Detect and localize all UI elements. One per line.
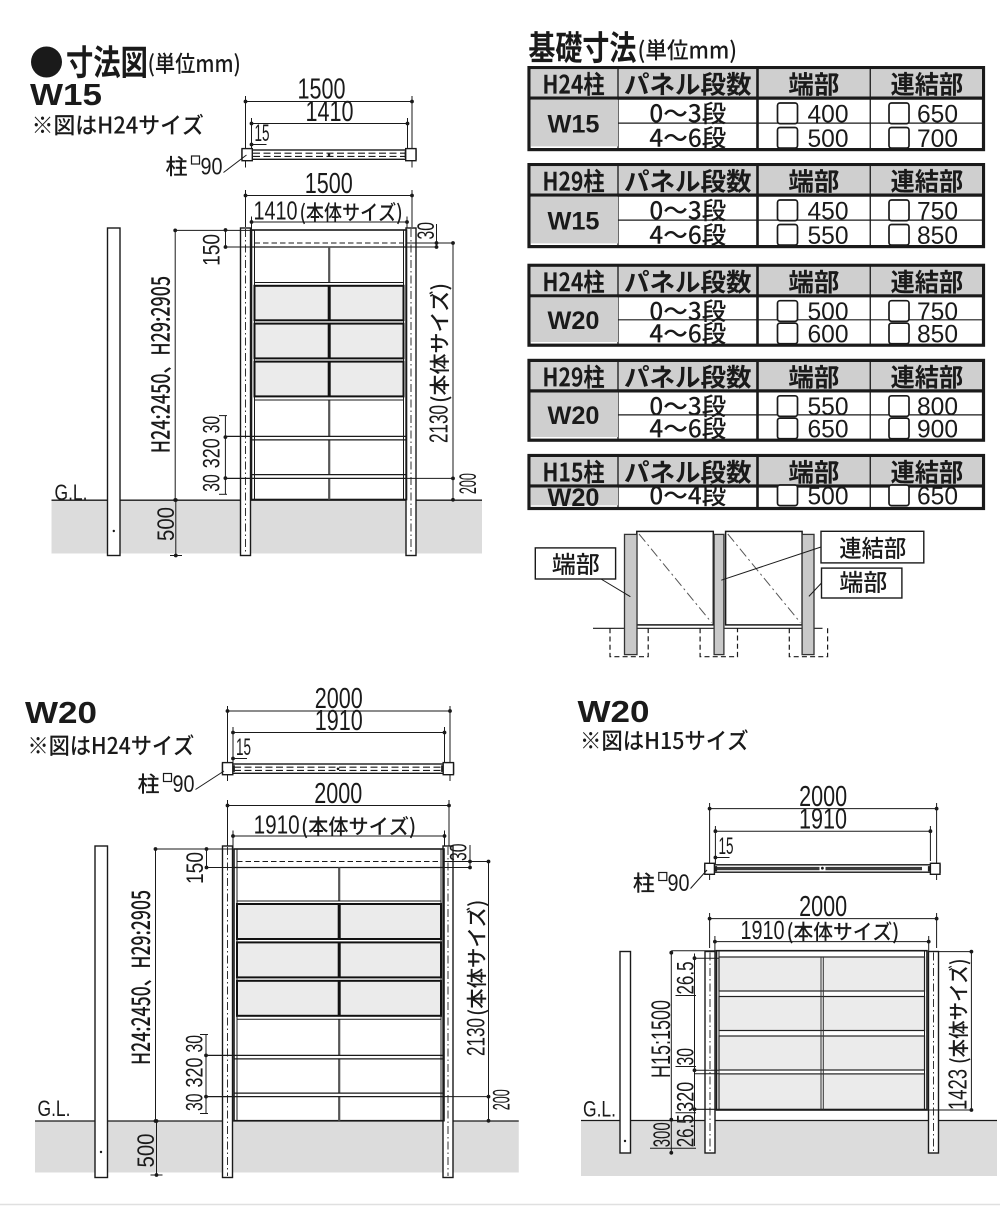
svg-text:650: 650 xyxy=(808,415,849,443)
svg-text:700: 700 xyxy=(917,125,958,153)
svg-text:30: 30 xyxy=(198,474,225,492)
svg-text:15: 15 xyxy=(719,833,734,860)
svg-text:90: 90 xyxy=(201,154,223,181)
svg-text:200: 200 xyxy=(455,473,482,494)
svg-text:W15: W15 xyxy=(548,207,600,235)
svg-text:W20: W20 xyxy=(25,695,97,730)
svg-text:150: 150 xyxy=(198,234,225,266)
svg-text:320: 320 xyxy=(182,1058,209,1088)
svg-text:1410: 1410 xyxy=(254,196,298,226)
svg-text:150: 150 xyxy=(182,852,209,884)
svg-text:W15: W15 xyxy=(548,110,600,138)
svg-text:1500: 1500 xyxy=(305,168,353,200)
svg-text:G.L.: G.L. xyxy=(55,480,88,505)
svg-text:850: 850 xyxy=(917,222,958,250)
svg-text:30: 30 xyxy=(446,844,473,862)
svg-text:W20: W20 xyxy=(578,694,650,729)
svg-text:320: 320 xyxy=(198,438,225,468)
svg-text:650: 650 xyxy=(917,482,958,510)
svg-text:26.5: 26.5 xyxy=(673,962,700,995)
svg-text:1410: 1410 xyxy=(306,96,354,128)
svg-text:2000: 2000 xyxy=(799,891,847,923)
svg-text:15: 15 xyxy=(255,120,270,147)
svg-text:2000: 2000 xyxy=(314,778,362,810)
svg-text:320: 320 xyxy=(673,1082,700,1112)
svg-text:W20: W20 xyxy=(548,484,600,512)
svg-text:G.L.: G.L. xyxy=(38,1096,71,1121)
svg-text:15: 15 xyxy=(236,734,251,761)
svg-text:W15: W15 xyxy=(30,77,102,112)
svg-text:30: 30 xyxy=(182,1035,209,1053)
svg-text:600: 600 xyxy=(808,320,849,348)
svg-text:550: 550 xyxy=(808,222,849,250)
svg-text:2130: 2130 xyxy=(462,1018,490,1056)
svg-text:500: 500 xyxy=(133,1134,160,1168)
svg-text:900: 900 xyxy=(917,415,958,443)
svg-text:200: 200 xyxy=(489,1089,516,1110)
svg-text:1910: 1910 xyxy=(315,705,363,737)
svg-text:1910: 1910 xyxy=(741,915,785,945)
svg-text:2130: 2130 xyxy=(423,405,453,443)
svg-text:500: 500 xyxy=(808,125,849,153)
svg-text:W20: W20 xyxy=(548,307,600,335)
svg-text:90: 90 xyxy=(668,870,690,897)
svg-text:500: 500 xyxy=(808,482,849,510)
svg-text:500: 500 xyxy=(153,507,180,541)
svg-text:30: 30 xyxy=(182,1094,209,1112)
svg-text:26.5: 26.5 xyxy=(673,1114,700,1147)
svg-text:1910: 1910 xyxy=(254,810,300,840)
svg-text:G.L.: G.L. xyxy=(583,1097,616,1122)
svg-text:90: 90 xyxy=(173,771,195,798)
svg-text:H15:1500: H15:1500 xyxy=(646,1000,676,1078)
svg-text:W20: W20 xyxy=(548,402,600,430)
svg-text:850: 850 xyxy=(917,320,958,348)
svg-text:30: 30 xyxy=(673,1048,700,1066)
svg-text:30: 30 xyxy=(198,416,225,434)
svg-text:30: 30 xyxy=(413,222,440,240)
svg-text:1910: 1910 xyxy=(799,804,847,836)
svg-text:1423: 1423 xyxy=(942,1069,972,1110)
